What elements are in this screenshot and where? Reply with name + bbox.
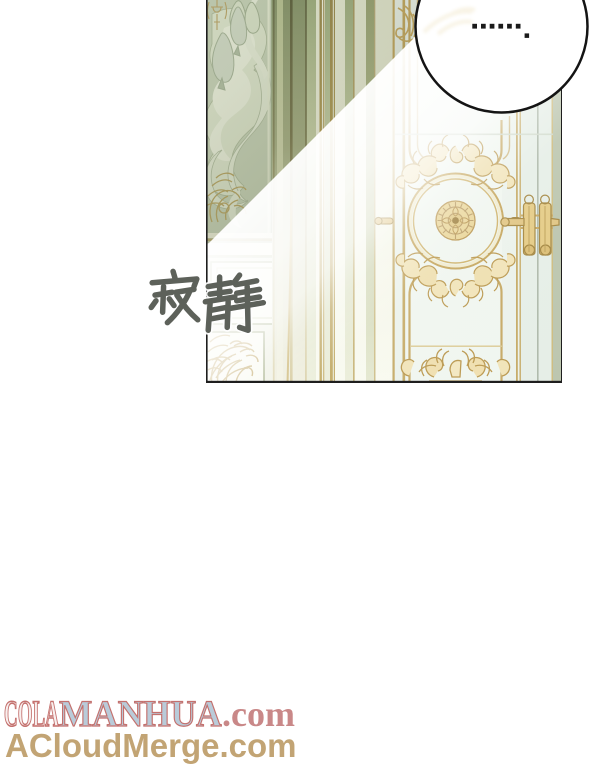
svg-text:ACloudMerge.com: ACloudMerge.com xyxy=(5,727,297,764)
